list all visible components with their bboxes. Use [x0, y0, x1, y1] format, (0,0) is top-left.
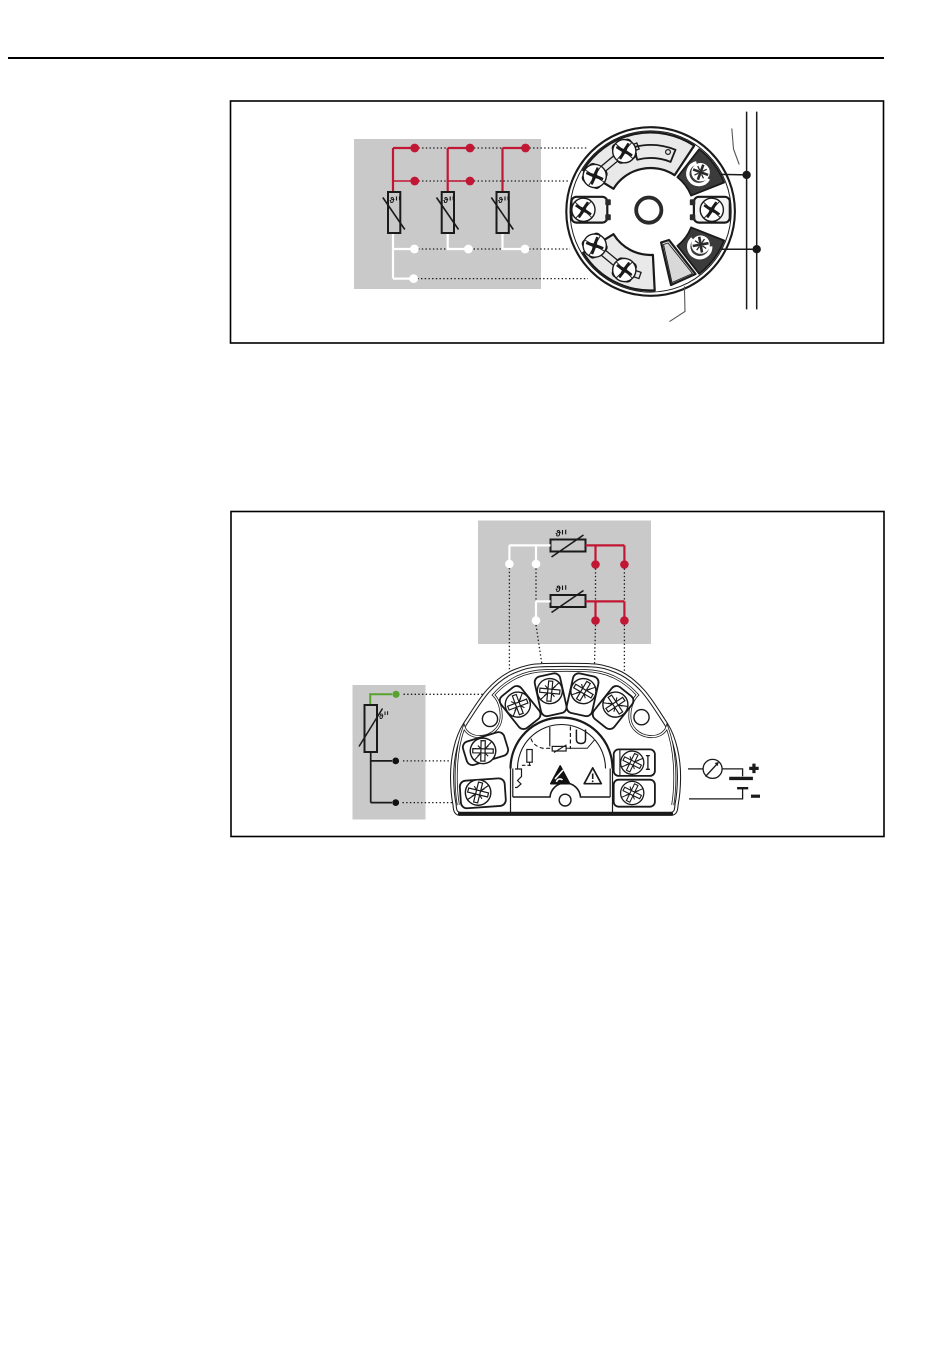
svg-text:ϑ: ϑ: [379, 712, 384, 721]
svg-text:ϑ: ϑ: [556, 529, 562, 539]
svg-text:ϑ: ϑ: [390, 195, 395, 205]
svg-text:ϑ: ϑ: [498, 195, 503, 205]
svg-text:ϑ: ϑ: [443, 195, 448, 205]
svg-text:ϑ: ϑ: [556, 584, 562, 594]
